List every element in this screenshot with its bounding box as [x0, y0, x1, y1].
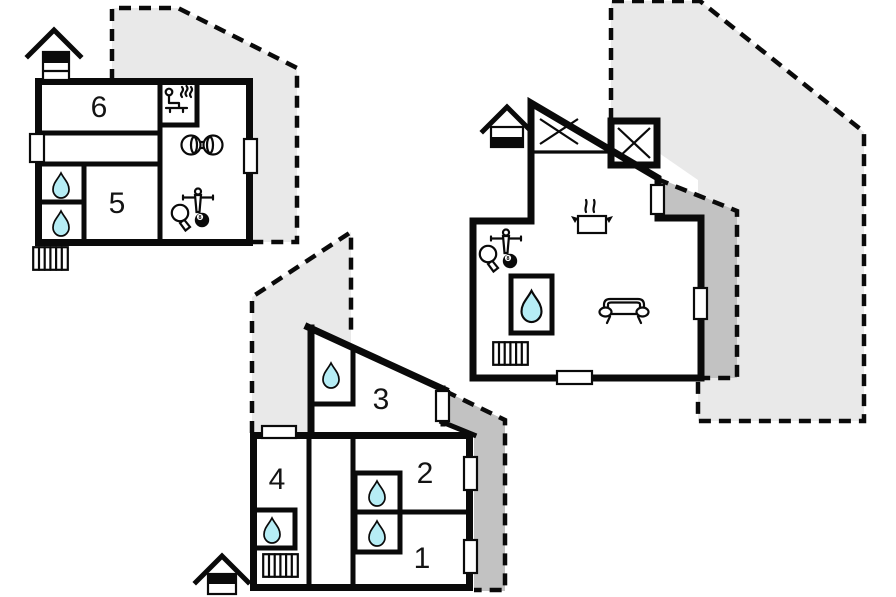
room-label-6: 6: [91, 91, 108, 124]
window: [464, 540, 477, 573]
window: [244, 139, 257, 173]
room-label-2: 2: [417, 457, 434, 490]
room-label-5: 5: [109, 187, 126, 220]
window: [262, 426, 296, 438]
entrance-door: [30, 134, 44, 162]
stairs-icon: [493, 342, 528, 365]
window: [651, 185, 664, 214]
entrance-icon: [483, 107, 531, 147]
outdoor-stairs-icon: [33, 247, 68, 270]
window: [436, 391, 449, 421]
top-floor-plan: 8 6 5: [28, 8, 297, 270]
bedroom-floor-plan: 3 4 2 1: [196, 232, 505, 594]
window: [464, 457, 477, 490]
floor-plan-drawing: 8 6 5: [0, 0, 896, 597]
floor-plan-page: 8 6 5: [0, 0, 896, 597]
window: [694, 288, 707, 319]
billiard-ball-number: 8: [507, 256, 510, 262]
room-label-3: 3: [373, 383, 390, 416]
main-floor-plan: 8: [473, 1, 864, 421]
window: [557, 371, 592, 384]
room-label-1: 1: [414, 542, 431, 575]
entrance-icon: [28, 30, 80, 80]
stairs-icon: [263, 554, 298, 577]
billiard-ball-number: 8: [199, 215, 202, 221]
room-label-4: 4: [269, 463, 286, 496]
entrance-icon: [196, 556, 248, 594]
